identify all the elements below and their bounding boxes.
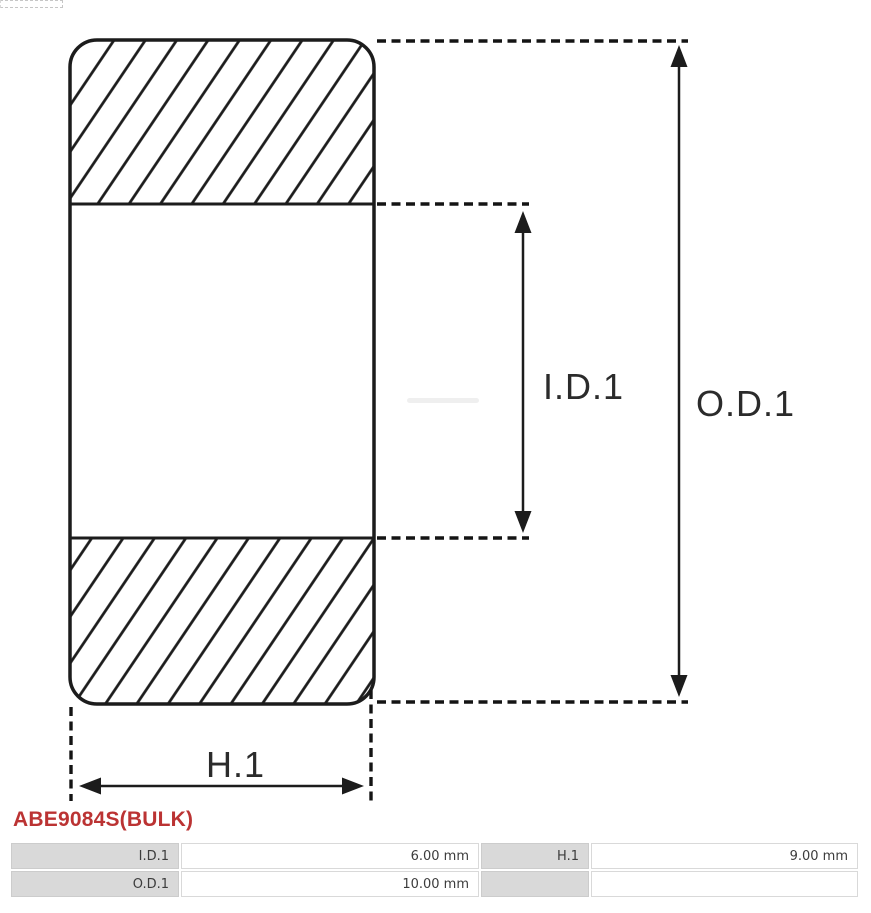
dim-name-cell: H.1 <box>481 843 589 869</box>
dim-value-cell: 9.00 mm <box>591 843 858 869</box>
dim-name-cell: I.D.1 <box>11 843 179 869</box>
bearing-hatch-bottom <box>70 538 374 704</box>
id-label: I.D.1 <box>543 366 624 407</box>
id-dimension-arrow <box>515 211 532 533</box>
product-drawing-page: I.D.1 O.D.1 H.1 ABE9084S(BULK) I.D.1 6.0… <box>0 0 871 913</box>
od-label: O.D.1 <box>696 383 795 424</box>
dim-value-cell: 6.00 mm <box>181 843 479 869</box>
faint-watermark <box>407 398 479 403</box>
height-label: H.1 <box>206 744 265 785</box>
bearing-hatch-top <box>70 40 374 204</box>
bearing-diagram: I.D.1 O.D.1 H.1 <box>0 0 871 806</box>
dim-value-cell <box>591 871 858 897</box>
part-number-title: ABE9084S(BULK) <box>13 808 193 832</box>
dimensions-table: I.D.1 6.00 mm H.1 9.00 mm O.D.1 10.00 mm <box>9 841 860 899</box>
table-row: I.D.1 6.00 mm H.1 9.00 mm <box>11 843 858 869</box>
dim-name-cell: O.D.1 <box>11 871 179 897</box>
table-row: O.D.1 10.00 mm <box>11 871 858 897</box>
od-dimension-arrow <box>671 45 688 697</box>
dim-value-cell: 10.00 mm <box>181 871 479 897</box>
dim-name-cell <box>481 871 589 897</box>
